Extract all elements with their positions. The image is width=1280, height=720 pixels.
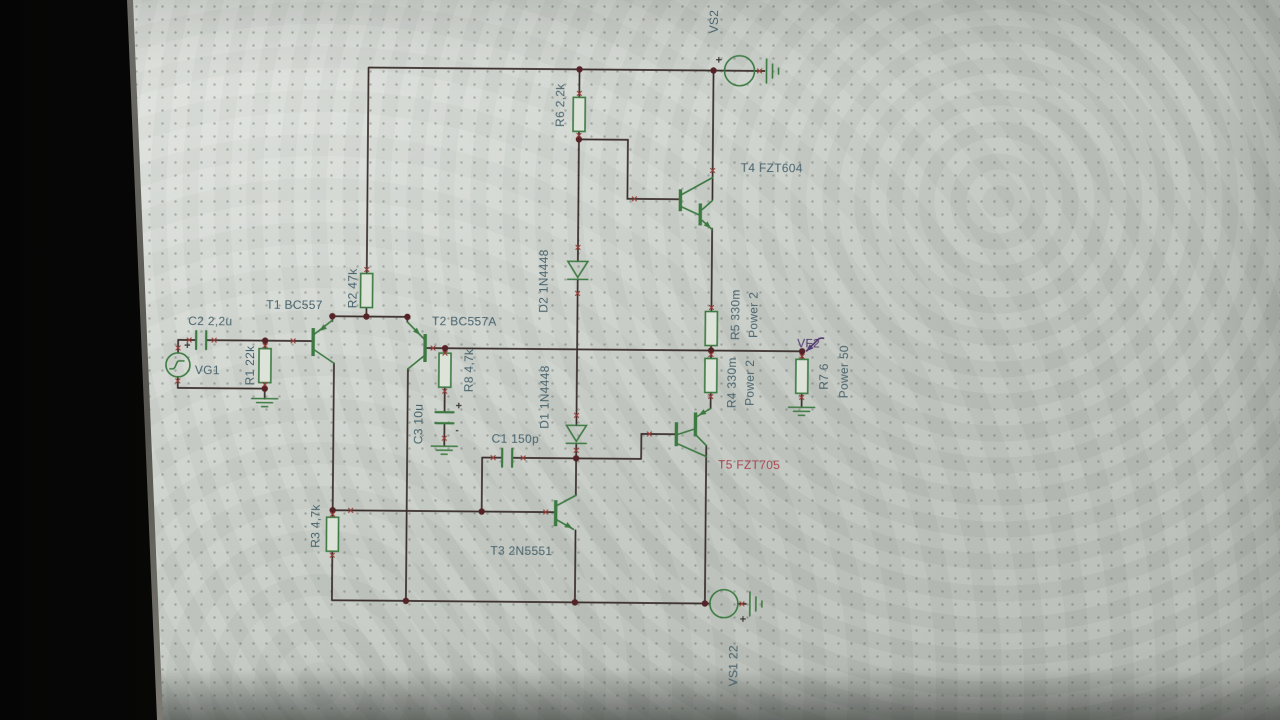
- label-r5-power: Power 2: [746, 292, 760, 338]
- component-vg1[interactable]: + VG1: [166, 340, 220, 377]
- label-r5: R5 330m: [728, 289, 742, 340]
- component-t3[interactable]: T3 2N5551: [490, 495, 576, 559]
- label-vs1: VS1 22: [726, 645, 740, 686]
- label-r4-power: Power 2: [743, 360, 757, 406]
- component-c2[interactable]: C2 2,2u: [188, 314, 232, 349]
- component-r6[interactable]: R6 2,2k: [553, 83, 585, 132]
- label-r7-power: Power 50: [837, 345, 851, 398]
- label-c1: C1 150p: [492, 432, 540, 446]
- label-d1: D1 1N4448: [538, 365, 553, 429]
- label-vs2: VS2: [707, 10, 721, 34]
- component-t5[interactable]: T5 FZT705: [676, 408, 781, 472]
- schematic-canvas[interactable]: + VG1 C2 2,2u R1 22k T1 BC557 R2 47k: [0, 0, 1280, 720]
- component-c3[interactable]: + - C3 10u: [411, 400, 462, 445]
- label-d2: D2 1N4448: [537, 249, 552, 313]
- ground-icon[interactable]: [789, 407, 815, 415]
- c3-plus: +: [456, 400, 463, 412]
- label-c3: C3 10u: [411, 404, 425, 445]
- component-d1[interactable]: D1 1N4448: [537, 365, 587, 443]
- ground-icon[interactable]: [766, 59, 778, 83]
- label-r8: R8 4,7k: [462, 348, 476, 392]
- vs1-plus: +: [740, 614, 747, 626]
- label-t1: T1 BC557: [266, 298, 323, 312]
- label-r7: R7 6: [817, 363, 831, 390]
- component-r5[interactable]: R5 330m Power 2: [705, 289, 761, 346]
- label-vg1: VG1: [195, 363, 220, 377]
- ground-icon[interactable]: [252, 399, 278, 407]
- component-r2[interactable]: R2 47k: [346, 268, 373, 309]
- label-r4: R4 330m: [725, 357, 739, 408]
- ground-icon[interactable]: [750, 592, 762, 616]
- label-r6: R6 2,2k: [553, 83, 567, 127]
- component-d2[interactable]: D2 1N4448: [537, 249, 588, 313]
- waveform-icon: [170, 361, 184, 369]
- label-r2: R2 47k: [346, 268, 360, 309]
- label-vf2: VF2: [797, 336, 820, 350]
- label-t4: T4 FZT604: [741, 161, 803, 176]
- c3-minus: -: [455, 425, 458, 436]
- label-c2: C2 2,2u: [188, 314, 232, 328]
- label-r1: R1 22k: [243, 345, 257, 386]
- label-t5: T5 FZT705: [718, 458, 780, 473]
- component-t2[interactable]: T2 BC557A: [407, 314, 497, 370]
- junction-dots: [260, 63, 808, 607]
- label-r3: R3 4,7k: [309, 504, 323, 548]
- component-r4[interactable]: R4 330m Power 2: [705, 357, 758, 408]
- label-t2: T2 BC557A: [432, 314, 497, 329]
- component-t1[interactable]: T1 BC557: [266, 298, 335, 364]
- ground-icon[interactable]: [431, 446, 457, 454]
- component-r1[interactable]: R1 22k: [243, 345, 271, 386]
- vs2-plus: +: [716, 55, 723, 67]
- component-c1[interactable]: C1 150p: [491, 432, 539, 467]
- label-t3: T3 2N5551: [490, 544, 552, 559]
- monitor-photo: + VG1 C2 2,2u R1 22k T1 BC557 R2 47k: [0, 0, 1280, 720]
- component-t4[interactable]: T4 FZT604: [680, 160, 803, 231]
